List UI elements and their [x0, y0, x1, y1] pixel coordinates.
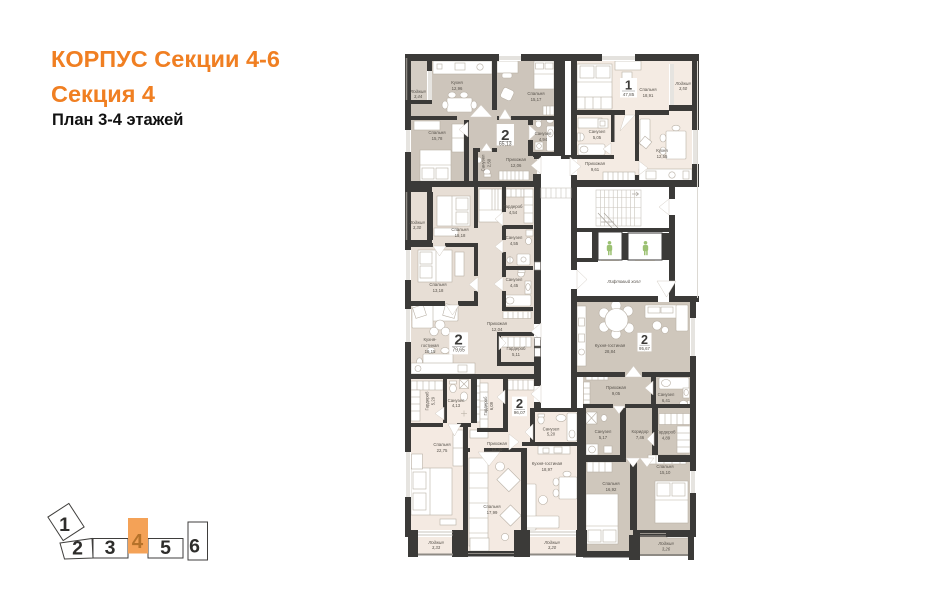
svg-text:6: 6 [189, 536, 200, 558]
svg-text:3: 3 [105, 537, 116, 559]
svg-text:1: 1 [59, 514, 70, 536]
svg-text:4: 4 [132, 530, 144, 553]
svg-text:5: 5 [160, 537, 171, 559]
svg-text:2: 2 [72, 538, 83, 560]
